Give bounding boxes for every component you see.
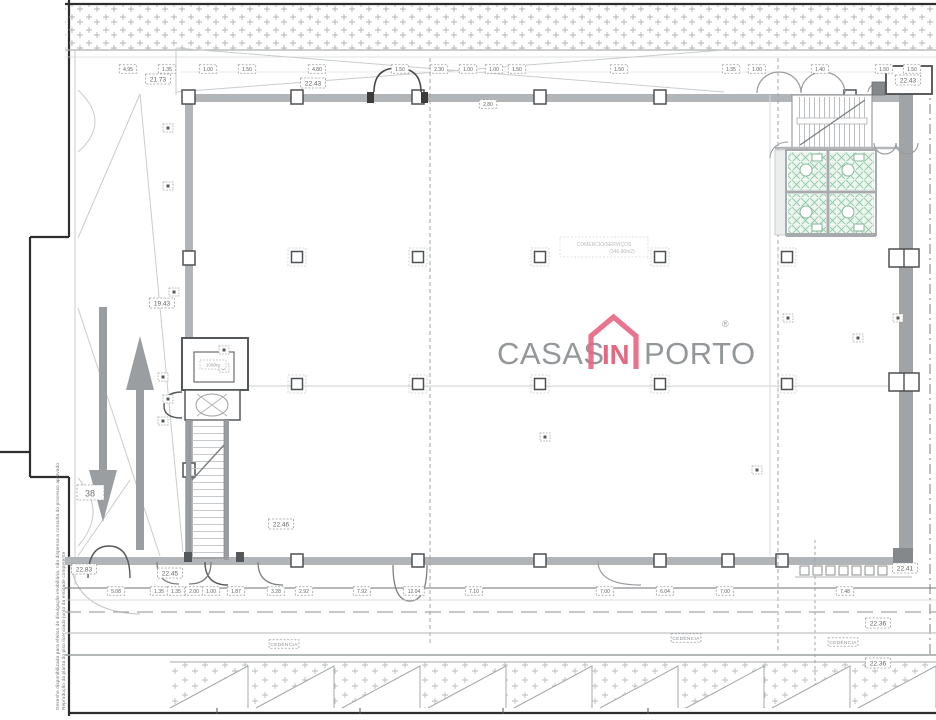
survey-marker: [540, 433, 550, 441]
dimension-label: 1.50: [875, 65, 892, 74]
watermark-in: IN: [602, 339, 630, 370]
dimension-label: 2.92: [295, 587, 312, 596]
cedencia-label: CEDÊNCIA: [828, 638, 858, 647]
level-label: 22.41: [892, 563, 917, 573]
survey-marker: [783, 314, 793, 322]
staircase: [191, 420, 224, 558]
wc-tiled-rooms: [775, 150, 876, 237]
column: [531, 375, 549, 393]
column: [409, 248, 427, 266]
svg-text:1.35: 1.35: [726, 67, 736, 73]
svg-text:7.48: 7.48: [840, 589, 850, 595]
dimension-label: 4.95: [119, 65, 136, 74]
dimension-label: 2.30: [430, 65, 447, 74]
floor-plan-drawing: 4.951.351.001.504.801.502.301.001.001.50…: [0, 0, 936, 720]
dimension-label: 1.50: [903, 65, 920, 74]
svg-text:12.04: 12.04: [408, 589, 421, 595]
svg-text:4.95: 4.95: [123, 67, 133, 73]
margin-note-1: Desenho disponibilizado para efeitos de …: [55, 463, 60, 710]
level-label: 22.83: [71, 564, 96, 574]
level-label: 19.43: [149, 298, 174, 308]
dimension-label: 7.00: [716, 587, 733, 596]
side-passage: [70, 50, 183, 614]
svg-text:7.10: 7.10: [469, 589, 479, 595]
dimension-label: 2.00: [185, 587, 202, 596]
dimension-label: 1.00: [199, 65, 216, 74]
dimension-label: 7.48: [836, 587, 853, 596]
svg-text:19.43: 19.43: [154, 300, 171, 307]
interior-columns: [288, 248, 796, 393]
survey-marker: [893, 314, 903, 322]
survey-marker: [163, 395, 173, 403]
room-name: COMÉRCIO/SERVIÇOS: [577, 241, 632, 248]
cedencia-label: CEDÊNCIA: [671, 634, 701, 643]
dimension-label: 1.00: [485, 65, 502, 74]
svg-text:22.43: 22.43: [305, 80, 322, 87]
svg-text:1.00: 1.00: [489, 67, 499, 73]
svg-text:21.73: 21.73: [150, 76, 167, 83]
dimension-label: 1.35: [158, 65, 175, 74]
house-number: 38: [85, 489, 95, 499]
level-label: 22.43: [895, 75, 920, 85]
svg-text:1.00: 1.00: [206, 589, 216, 595]
column: [651, 375, 669, 393]
survey-marker: [853, 334, 863, 342]
svg-text:22.83: 22.83: [76, 566, 93, 573]
svg-text:6.04: 6.04: [660, 589, 670, 595]
road-lines: [65, 588, 936, 655]
ramp-up-arrow: [126, 336, 154, 550]
survey-marker: [158, 373, 168, 381]
dimension-label: 1.00: [202, 587, 219, 596]
margin-notes: Desenho disponibilizado para efeitos de …: [55, 463, 66, 710]
level-label: 22.36: [865, 658, 890, 668]
cedencia-label: CEDÊNCIA: [269, 640, 299, 649]
svg-text:1.35: 1.35: [154, 589, 164, 595]
svg-text:1.50: 1.50: [907, 67, 917, 73]
svg-text:7.92: 7.92: [357, 589, 367, 595]
level-label: 22.46: [268, 519, 293, 529]
level-label: 22.43: [300, 78, 325, 88]
dimension-label: 1.35: [167, 587, 184, 596]
level-label: 21.73: [145, 74, 170, 84]
svg-text:22.41: 22.41: [897, 565, 914, 572]
dimension-label: 1.00: [748, 65, 765, 74]
dimension-label: 1.87: [227, 587, 244, 596]
dimension-label: 2.80: [479, 100, 496, 109]
dimension-label: 12.04: [404, 587, 425, 596]
svg-text:1.87: 1.87: [231, 589, 241, 595]
svg-text:1.00: 1.00: [463, 67, 473, 73]
svg-text:1.50: 1.50: [512, 67, 522, 73]
survey-marker: [163, 124, 173, 132]
bottom-terrain-hatch: [170, 662, 936, 714]
watermark-porto: PORTO: [644, 336, 756, 371]
upper-staircase: [775, 95, 899, 150]
svg-text:1.50: 1.50: [614, 67, 624, 73]
column: [778, 248, 796, 266]
dimension-label: 5.08: [107, 587, 124, 596]
svg-text:1.50: 1.50: [879, 67, 889, 73]
stair-core: [164, 338, 248, 585]
svg-text:1.40: 1.40: [815, 67, 825, 73]
svg-text:1.35: 1.35: [162, 67, 172, 73]
column: [409, 375, 427, 393]
survey-marker: [752, 466, 762, 474]
svg-text:2.30: 2.30: [434, 67, 444, 73]
dimension-label: 7.10: [465, 587, 482, 596]
column: [288, 375, 306, 393]
dimension-label: 3.28: [267, 587, 284, 596]
room-area: (346.60m2): [609, 249, 635, 255]
svg-text:1.00: 1.00: [203, 67, 213, 73]
survey-marker: [219, 346, 229, 354]
dimension-label: 1.40: [811, 65, 828, 74]
dimension-label: 1.50: [508, 65, 525, 74]
svg-text:22.43: 22.43: [900, 77, 917, 84]
svg-text:1.35: 1.35: [171, 589, 181, 595]
column: [531, 248, 549, 266]
dimension-label: 4.80: [308, 65, 325, 74]
dimension-label: 1.50: [610, 65, 627, 74]
column: [288, 248, 306, 266]
svg-text:22.36: 22.36: [870, 620, 887, 627]
svg-text:7.00: 7.00: [600, 589, 610, 595]
dimension-label: 6.04: [656, 587, 673, 596]
registered-mark: ®: [722, 319, 729, 329]
column: [778, 375, 796, 393]
svg-text:7.00: 7.00: [720, 589, 730, 595]
svg-text:1.00: 1.00: [752, 67, 762, 73]
dimension-label: 7.92: [353, 587, 370, 596]
svg-text:2.00: 2.00: [189, 589, 199, 595]
svg-text:22.46: 22.46: [273, 521, 290, 528]
level-label: 22.36: [865, 618, 890, 628]
dimension-label: 1.00: [459, 65, 476, 74]
level-label: 22.45: [157, 568, 182, 578]
dimension-label: 7.00: [596, 587, 613, 596]
svg-text:1.50: 1.50: [395, 67, 405, 73]
room-label: COMÉRCIO/SERVIÇOS (346.60m2): [560, 237, 648, 257]
survey-marker: [158, 417, 168, 425]
dimension-label: 1.50: [391, 65, 408, 74]
svg-text:3.28: 3.28: [271, 589, 281, 595]
column: [651, 248, 669, 266]
survey-marker: [163, 182, 173, 190]
dimension-label: 1.35: [150, 587, 167, 596]
dimension-label: 1.35: [722, 65, 739, 74]
lift-capacity: 1000kg: [206, 363, 221, 368]
svg-text:5.08: 5.08: [111, 589, 121, 595]
watermark-logo: CASAS IN PORTO ®: [497, 317, 756, 371]
svg-text:1.50: 1.50: [242, 67, 252, 73]
house-number-label: 38: [77, 485, 104, 500]
svg-text:22.36: 22.36: [870, 660, 887, 667]
svg-text:2.80: 2.80: [483, 102, 493, 108]
svg-text:4.80: 4.80: [312, 67, 322, 73]
svg-text:2.92: 2.92: [299, 589, 309, 595]
survey-marker: [169, 288, 179, 296]
dimension-label: 1.50: [238, 65, 255, 74]
lift-label: 1000kg: [200, 360, 226, 369]
margin-note-2: Reprodução da planta do piso licenciado …: [61, 551, 66, 710]
svg-text:22.45: 22.45: [162, 570, 179, 577]
